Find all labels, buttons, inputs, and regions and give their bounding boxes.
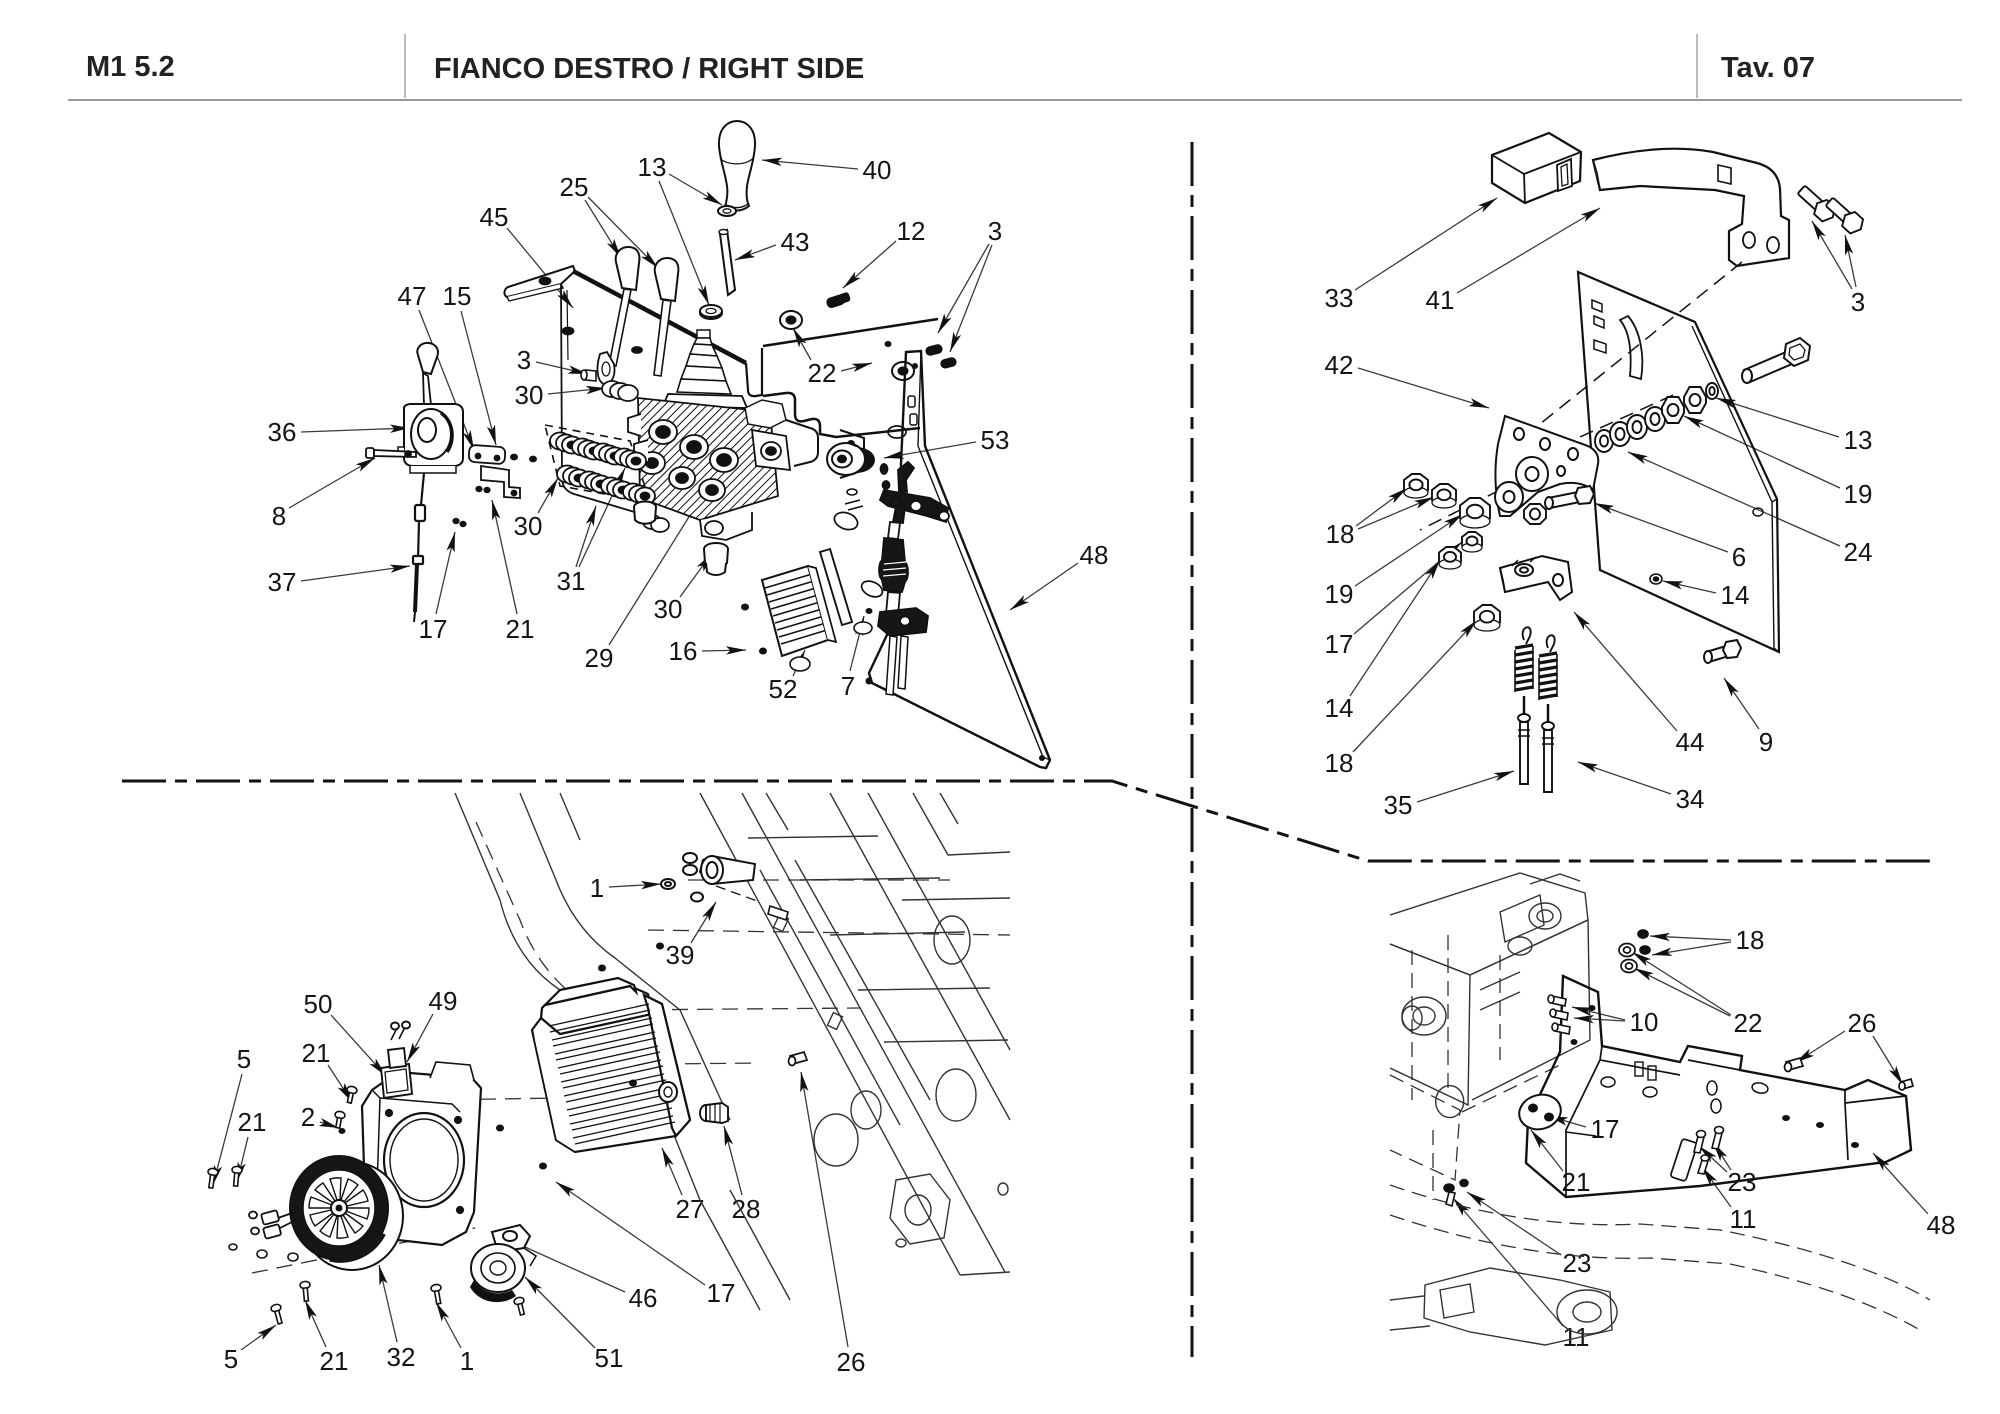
- svg-text:21: 21: [238, 1107, 267, 1137]
- svg-text:23: 23: [1563, 1248, 1592, 1278]
- svg-text:46: 46: [629, 1283, 658, 1313]
- svg-text:13: 13: [638, 152, 667, 182]
- svg-text:15: 15: [443, 281, 472, 311]
- svg-text:52: 52: [769, 674, 798, 704]
- svg-text:49: 49: [429, 986, 458, 1016]
- svg-text:44: 44: [1676, 727, 1705, 757]
- svg-text:34: 34: [1676, 784, 1705, 814]
- svg-text:5: 5: [224, 1344, 238, 1374]
- svg-text:36: 36: [268, 417, 297, 447]
- svg-text:17: 17: [1591, 1114, 1620, 1144]
- svg-text:6: 6: [1732, 542, 1746, 572]
- svg-text:21: 21: [320, 1346, 349, 1376]
- svg-text:3: 3: [1851, 287, 1865, 317]
- svg-text:8: 8: [272, 501, 286, 531]
- svg-text:48: 48: [1080, 540, 1109, 570]
- svg-text:3: 3: [988, 216, 1002, 246]
- svg-text:26: 26: [1848, 1008, 1877, 1038]
- svg-text:1: 1: [590, 873, 604, 903]
- svg-text:Tav. 07: Tav. 07: [1721, 52, 1815, 84]
- svg-text:11: 11: [1563, 1322, 1590, 1352]
- svg-text:18: 18: [1326, 519, 1355, 549]
- svg-text:19: 19: [1844, 479, 1873, 509]
- svg-text:14: 14: [1325, 693, 1354, 723]
- svg-text:48: 48: [1927, 1210, 1956, 1240]
- svg-text:14: 14: [1721, 580, 1750, 610]
- svg-text:M1 5.2: M1 5.2: [86, 51, 175, 83]
- svg-text:21: 21: [506, 614, 535, 644]
- svg-text:32: 32: [387, 1342, 416, 1372]
- svg-text:FIANCO DESTRO / RIGHT SIDE: FIANCO DESTRO / RIGHT SIDE: [434, 53, 864, 85]
- svg-text:7: 7: [841, 671, 855, 701]
- svg-text:17: 17: [707, 1278, 736, 1308]
- svg-text:13: 13: [1844, 425, 1873, 455]
- svg-text:16: 16: [669, 636, 698, 666]
- svg-text:5: 5: [237, 1044, 251, 1074]
- svg-text:24: 24: [1844, 537, 1873, 567]
- svg-text:10: 10: [1630, 1007, 1659, 1037]
- svg-text:22: 22: [1734, 1008, 1763, 1038]
- svg-text:11: 11: [1730, 1204, 1757, 1234]
- svg-text:3: 3: [517, 345, 531, 375]
- svg-text:26: 26: [837, 1347, 866, 1377]
- svg-text:17: 17: [1325, 629, 1354, 659]
- svg-text:45: 45: [480, 202, 509, 232]
- svg-text:33: 33: [1325, 283, 1354, 313]
- svg-text:2: 2: [301, 1102, 315, 1132]
- svg-text:22: 22: [808, 358, 837, 388]
- svg-text:50: 50: [304, 989, 333, 1019]
- svg-text:1: 1: [460, 1346, 474, 1376]
- svg-text:31: 31: [557, 566, 586, 596]
- svg-text:51: 51: [595, 1343, 624, 1373]
- svg-text:47: 47: [398, 281, 427, 311]
- svg-text:42: 42: [1325, 350, 1354, 380]
- svg-text:43: 43: [781, 227, 810, 257]
- svg-text:53: 53: [981, 425, 1010, 455]
- svg-text:40: 40: [863, 155, 892, 185]
- svg-text:25: 25: [560, 172, 589, 202]
- svg-text:12: 12: [897, 216, 926, 246]
- svg-text:17: 17: [419, 614, 448, 644]
- svg-text:35: 35: [1384, 790, 1413, 820]
- svg-text:18: 18: [1736, 925, 1765, 955]
- svg-text:37: 37: [268, 567, 297, 597]
- svg-text:21: 21: [302, 1038, 331, 1068]
- svg-text:29: 29: [585, 643, 614, 673]
- svg-text:30: 30: [515, 380, 544, 410]
- svg-text:30: 30: [514, 511, 543, 541]
- svg-text:30: 30: [654, 594, 683, 624]
- svg-text:9: 9: [1759, 727, 1773, 757]
- svg-text:19: 19: [1325, 579, 1354, 609]
- svg-text:39: 39: [666, 940, 695, 970]
- svg-text:18: 18: [1325, 748, 1354, 778]
- svg-text:41: 41: [1426, 285, 1455, 315]
